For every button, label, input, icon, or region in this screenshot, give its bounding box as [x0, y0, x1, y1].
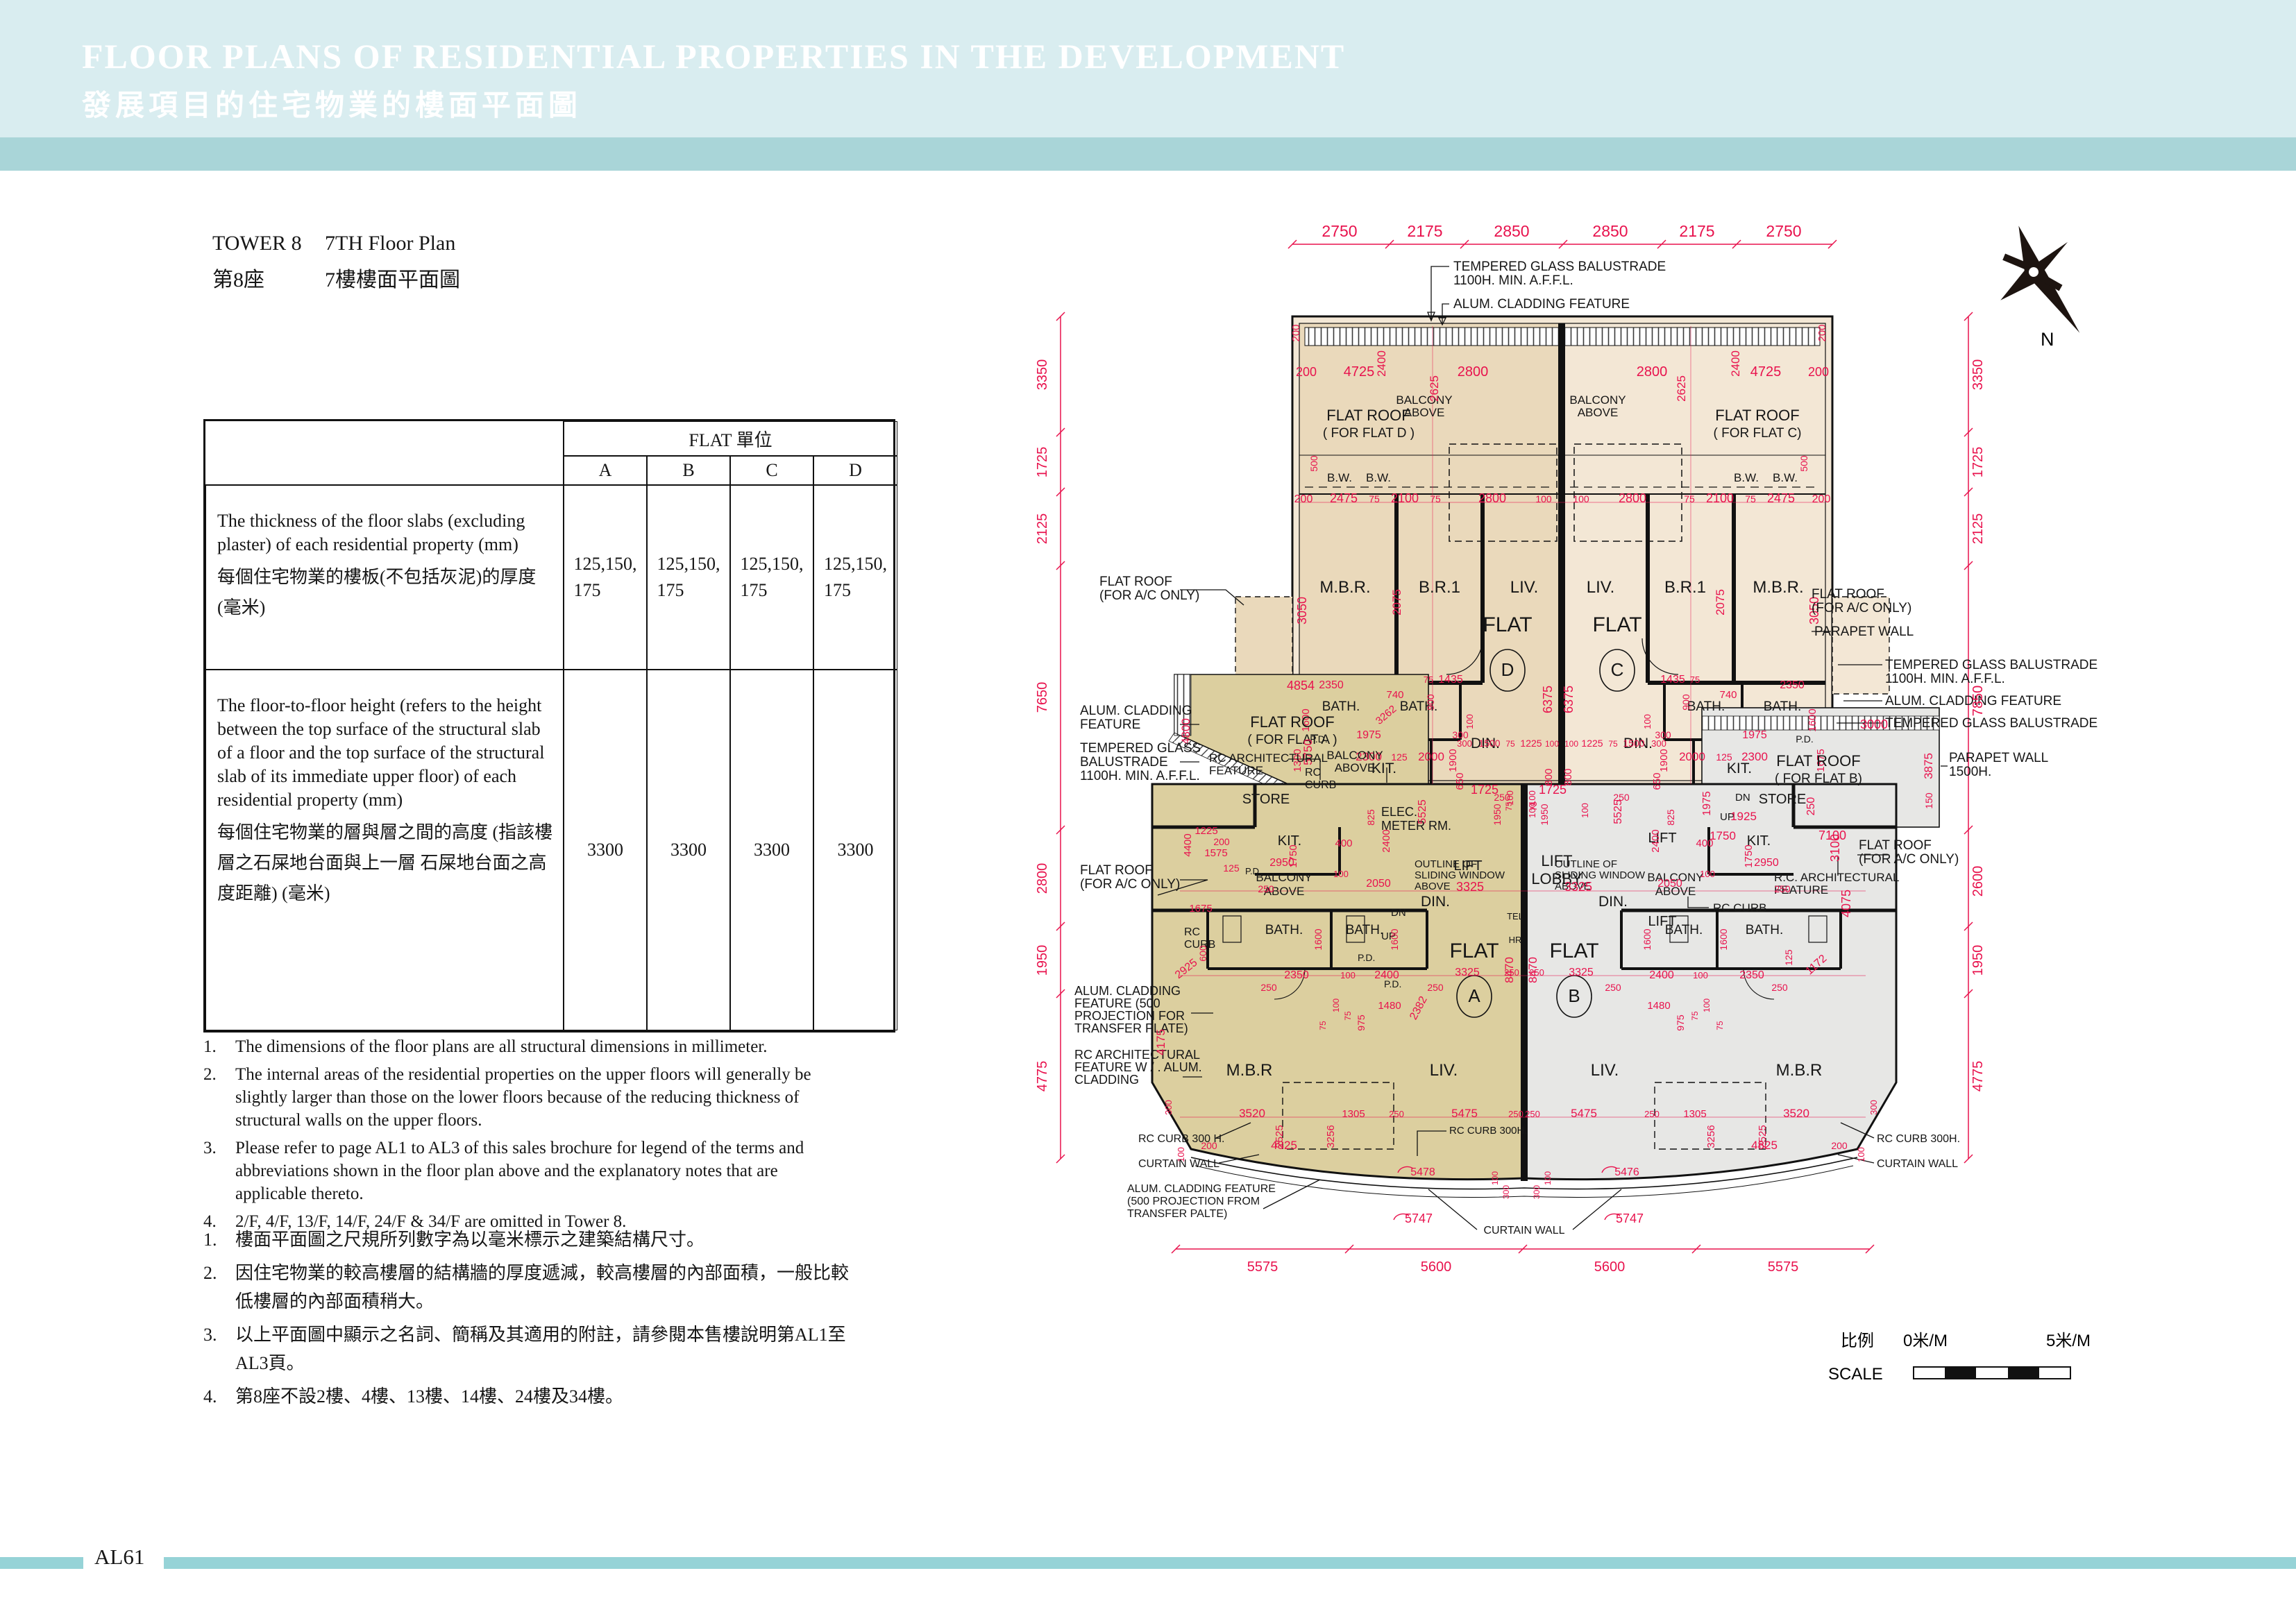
plan-label: 3350 [1970, 359, 1986, 391]
plan-label: 75 [1504, 801, 1514, 811]
plan-label: FLAT ROOF [1250, 713, 1334, 731]
plan-label: 5475 [1571, 1107, 1597, 1120]
plan-label: 250 [1771, 982, 1788, 993]
plan-label: 3256 [1705, 1125, 1717, 1148]
plan-label: 75 [1684, 493, 1695, 504]
plan-label: 7650 [1035, 682, 1050, 713]
plan-label: RC ARCHITECTURAL [1074, 1048, 1200, 1062]
plan-label: HR [1509, 935, 1522, 945]
plan-label: P.D [1245, 866, 1259, 876]
plan-label: 825 [1365, 809, 1376, 826]
plan-label: 900 [1425, 694, 1436, 711]
plan-label: 4175 [1154, 1029, 1167, 1055]
plan-label: OUTLINE OF [1555, 858, 1617, 870]
plan-label: 4775 [1035, 1061, 1050, 1092]
plan-label: 100 [1543, 1171, 1553, 1185]
plan-label: 2600 [1970, 866, 1986, 897]
plan-label: RC CURB 300H. [1449, 1125, 1528, 1137]
plan-label: 2350 [1319, 679, 1344, 691]
plan-label: 6375 [1541, 686, 1555, 713]
plan-label: 1975 [1701, 791, 1713, 816]
plan-label: FEATURE W / . ALUM. [1074, 1060, 1202, 1074]
plan-label: 3050 [1295, 597, 1309, 624]
plan-label: 1950 [1970, 945, 1986, 976]
plan-label: 2400 [1729, 350, 1742, 377]
plan-label: 5475 [1451, 1107, 1478, 1120]
plan-label: 500 [1798, 455, 1809, 472]
plan-label: 3325 [1456, 880, 1484, 894]
plan-label: TEMPERED GLASS BALUSTRADE [1885, 716, 2097, 731]
plan-label: ( FOR FLAT D ) [1323, 426, 1415, 441]
plan-label: B.R.1 [1664, 578, 1706, 597]
plan-label: C [1611, 659, 1624, 680]
scale-label-en: SCALE [1828, 1365, 1883, 1384]
plan-label: 300 [1868, 1100, 1879, 1115]
plan-label: 200 [1296, 365, 1317, 379]
plan-label: BATH. [1265, 923, 1303, 937]
plan-label: 1750 [1743, 844, 1755, 867]
plan-label: 100 [1642, 714, 1653, 729]
plan-label: B.W. [1773, 471, 1798, 484]
plan-label: ( FOR FLAT B) [1775, 772, 1862, 786]
plan-label: BATH. [1687, 699, 1725, 714]
plan-label: 200 [1831, 1140, 1848, 1151]
plan-label: FLAT ROOF [1099, 575, 1172, 589]
plan-label: 250 [1258, 883, 1274, 894]
plan-label: 7100 [1818, 829, 1846, 842]
plan-label: 200 [1213, 836, 1230, 847]
plan-label: 1725 [1970, 447, 1986, 478]
plan-label: 600 [1197, 945, 1208, 962]
plan-label: 1500H. [1949, 765, 1991, 779]
plan-label: 1600 [1718, 928, 1729, 950]
plan-label: 5476 [1614, 1166, 1639, 1178]
plan-label: 100 [1700, 869, 1715, 879]
plan-label: 2800 [1619, 491, 1646, 505]
plan-label: 2800 [1035, 863, 1050, 894]
plan-label: P.D. [1796, 733, 1813, 745]
plan-label: 200 [1290, 324, 1302, 341]
scale-zero: 0米/M [1903, 1332, 1948, 1350]
plan-label: 825 [1665, 809, 1676, 826]
plan-label: 1600 [1641, 928, 1653, 950]
plan-label: 5525 [1417, 799, 1428, 824]
plan-label: BALCONY [1326, 749, 1383, 762]
plan-label: B.W. [1327, 471, 1352, 484]
plan-label: 1100H. MIN. A.F.F.L. [1080, 769, 1200, 783]
plan-label: 100 [1573, 493, 1589, 504]
plan-label: CLADDING [1074, 1073, 1139, 1087]
plan-label: 5600 [1594, 1259, 1626, 1275]
plan-label: 3325 [1564, 880, 1592, 894]
plan-label: 125 [1716, 751, 1732, 763]
plan-label: 2175 [1679, 222, 1714, 240]
plan-label: FLAT ROOF [1812, 587, 1884, 602]
plan-label: 740 [1386, 689, 1403, 701]
plan-label: CURTAIN WALL [1138, 1158, 1219, 1170]
plan-label: 250 [1504, 967, 1519, 978]
plan-label: 1900 [1658, 749, 1670, 772]
plan-label: 1600 [1312, 928, 1324, 950]
plan-label: LIV. [1510, 578, 1539, 597]
plan-label: 1950 [1035, 945, 1050, 976]
plan-label: 1725 [1471, 783, 1499, 797]
plan-label: 250 [1508, 1109, 1523, 1119]
plan-label: 300 [1163, 1100, 1174, 1115]
plan-label: D [1501, 659, 1514, 680]
plan-label: FLAT [1483, 613, 1532, 636]
plan-label: M.B.R. [1753, 578, 1803, 597]
plan-label: 2850 [1592, 222, 1628, 240]
plan-label: RC CURB 300H. [1877, 1133, 1960, 1145]
plan-label: FLAT ROOF [1326, 407, 1410, 424]
plan-label: 300 [1532, 1185, 1542, 1199]
plan-label: 3520 [1783, 1107, 1809, 1120]
plan-label: 75 [1690, 1011, 1700, 1021]
plan-label: M.B.R. [1319, 578, 1370, 597]
plan-label: 2075 [1714, 589, 1727, 615]
brochure-page: { "header": { "title_en": "FLOOR PLANS O… [0, 0, 2296, 1623]
plan-label: DIN. [1598, 894, 1628, 910]
plan-label: 2125 [1035, 513, 1050, 545]
plan-label: 2475 [1330, 491, 1358, 505]
plan-label: 2175 [1407, 222, 1442, 240]
plan-label: 250 [1805, 797, 1817, 816]
plan-label: 1975 [1742, 729, 1767, 741]
plan-label: 1925 [1730, 810, 1757, 823]
plan-label: 3875 [1922, 753, 1935, 779]
plan-label: FEATURE [1209, 764, 1263, 777]
plan-label: BATH. [1746, 923, 1784, 937]
plan-label: 2125 [1970, 513, 1986, 545]
plan-label: RC [1184, 926, 1200, 938]
scale-five: 5米/M [2046, 1332, 2091, 1350]
plan-label: DN [1735, 792, 1750, 804]
plan-label: 2400 [1375, 350, 1388, 377]
plan-label: 2850 [1494, 222, 1529, 240]
plan-label: M.B.R [1776, 1061, 1823, 1080]
plan-label: BALCONY [1396, 393, 1452, 407]
plan-label: 3325 [1455, 967, 1480, 978]
plan-label: 100 [1856, 1147, 1866, 1162]
plan-label: 250 [1774, 883, 1791, 894]
north-arrow [1980, 213, 2095, 353]
plan-label: 5575 [1768, 1259, 1799, 1275]
plan-label: 1975 [1356, 729, 1381, 741]
plan-label: FLAT [1592, 613, 1641, 636]
plan-label: 4775 [1970, 1061, 1986, 1092]
plan-label: 2100 [1391, 491, 1419, 505]
plan-label: ALUM. CLADDING [1074, 984, 1181, 998]
plan-label: 2800 [1637, 364, 1668, 380]
plan-label: STORE [1242, 792, 1290, 807]
plan-label: (FOR A/C ONLY) [1859, 852, 1959, 867]
plan-label: TEMPERED GLASS BALUSTRADE [1453, 260, 1666, 274]
plan-label: 6375 [1562, 686, 1576, 713]
plan-label: 5478 [1410, 1166, 1435, 1178]
plan-label: 5525 [1612, 799, 1624, 824]
plan-label: 1500 [1478, 738, 1500, 749]
plan-label: 125 [1391, 751, 1408, 763]
plan-label: TEL [1507, 911, 1523, 921]
plan-label: PARAPET WALL [1814, 624, 1914, 639]
plan-label: RC CURB [1713, 901, 1766, 915]
plan-label: 75 [1745, 493, 1756, 504]
plan-label: BALCONY [1569, 393, 1626, 407]
plan-label: PROJECTION FOR [1074, 1009, 1185, 1023]
plan-label: 3325 [1569, 967, 1594, 978]
plan-label: 75 [1690, 674, 1700, 685]
plan-label: 975 [1356, 1014, 1367, 1031]
plan-label: 1725 [1539, 783, 1567, 797]
plan-label: LIV. [1430, 1061, 1458, 1080]
plan-label: 1480 [1647, 1000, 1670, 1012]
plan-label: 100 [1331, 999, 1341, 1012]
plan-label: 4075 [1839, 890, 1853, 917]
plan-label: 4825 [1751, 1139, 1778, 1152]
plan-label: FLAT ROOF [1859, 838, 1932, 853]
plan-label: 2100 [1706, 491, 1734, 505]
plan-label: TEMPERED GLASS [1080, 741, 1201, 756]
plan-label: BATH. [1665, 923, 1703, 937]
plan-label: 100 [1464, 714, 1475, 729]
plan-label: 2350 [1284, 969, 1309, 981]
plan-label: 1225 [1520, 738, 1542, 749]
plan-label: 75 [1424, 674, 1433, 685]
plan-label: BATH. [1346, 923, 1384, 937]
plan-label: 4854 [1287, 679, 1315, 692]
plan-label: 4825 [1271, 1139, 1297, 1152]
plan-label: 2475 [1767, 491, 1795, 505]
plan-label: 1600 [1807, 708, 1818, 731]
plan-label: 2750 [1766, 222, 1801, 240]
plan-label: 75 [1343, 1011, 1353, 1021]
plan-label: 1225 [1581, 738, 1603, 749]
plan-label: ABOVE [1335, 761, 1376, 774]
floor-plan: 275021752850285021752750TEMPERED GLASS B… [0, 0, 2296, 1623]
plan-label: 250 [1644, 1109, 1660, 1119]
plan-label: 2950 [1754, 857, 1779, 869]
north-label: N [2041, 329, 2054, 350]
plan-label: FEATURE (500 [1074, 996, 1160, 1010]
plan-label: LIV. [1591, 1061, 1619, 1080]
plan-label: 2400 [1649, 969, 1674, 981]
plan-label: A [1468, 985, 1480, 1006]
plan-label: (FOR A/C ONLY) [1099, 588, 1199, 603]
plan-label: 250 [1260, 982, 1277, 993]
plan-label: 1750 [1710, 829, 1736, 842]
plan-label: 650 [1454, 772, 1466, 790]
plan-label: 250 [1529, 967, 1544, 978]
plan-label: 250 [1605, 982, 1621, 993]
plan-label: CURTAIN WALL [1877, 1158, 1958, 1170]
plan-label: 1480 [1378, 1000, 1401, 1012]
plan-label: 975 [1675, 1014, 1686, 1031]
plan-label: RC [1305, 767, 1321, 779]
plan-label: 2050 [1366, 878, 1391, 890]
plan-label: 1100H. MIN. A.F.F.L. [1453, 273, 1573, 288]
plan-label: FEATURE [1080, 717, 1140, 732]
plan-label: 650 [1651, 772, 1663, 790]
plan-label: 100 [1545, 739, 1559, 749]
plan-label: 1725 [1035, 447, 1050, 478]
plan-label: ( FOR FLAT C) [1713, 426, 1801, 441]
plan-label: 1225 [1195, 825, 1217, 837]
plan-label: 75 [1608, 739, 1618, 749]
plan-label: ABOVE [1578, 406, 1619, 419]
plan-label: 100 [1340, 970, 1356, 980]
plan-label: 100 [1693, 970, 1708, 980]
plan-label: 2400 [1381, 829, 1392, 852]
plan-label: ABOVE [1415, 881, 1451, 892]
plan-label: 1950 [1539, 804, 1550, 825]
plan-label: BATH. [1764, 699, 1802, 714]
plan-label: OUTLINE OF [1415, 858, 1477, 870]
plan-label: 2075 [1390, 589, 1403, 615]
plan-label: 1500 [1623, 738, 1644, 749]
plan-label: ALUM. CLADDING [1080, 704, 1192, 718]
plan-label: 2800 [1478, 491, 1506, 505]
plan-label: 2000 [1679, 750, 1705, 763]
plan-label: 1675 [1189, 903, 1212, 915]
plan-label: ELEC. [1381, 805, 1417, 819]
plan-label: 2625 [1675, 375, 1688, 402]
plan-label: 7850 [1970, 686, 1986, 717]
plan-label: 3256 [1325, 1125, 1337, 1148]
plan-label: TRANSFER PLATE) [1074, 1021, 1188, 1035]
plan-label: 1600 [1389, 928, 1400, 950]
plan-label: 2750 [1322, 222, 1357, 240]
plan-label: RC ARCHITECTURAL [1209, 751, 1328, 765]
plan-label: 200 [1816, 324, 1828, 341]
plan-label: ALUM. CLADDING FEATURE [1453, 297, 1630, 312]
plan-label: 1435 [1438, 674, 1463, 686]
plan-label: PARAPET WALL [1949, 751, 2048, 765]
plan-label: 200 [1294, 493, 1313, 505]
plan-label: 400 [1335, 838, 1352, 849]
plan-label: 5747 [1405, 1212, 1433, 1225]
plan-label: 100 [1564, 739, 1578, 749]
plan-label: 740 [1719, 689, 1737, 701]
plan-label: 1950 [1492, 804, 1503, 825]
plan-label: 100 [1702, 999, 1712, 1012]
plan-label: 150 [1923, 792, 1934, 809]
plan-label: FLAT [1549, 940, 1598, 962]
plan-label: 400 [1696, 838, 1713, 849]
plan-label: 2950 [1269, 857, 1294, 869]
plan-label: P.D. [1358, 952, 1375, 963]
plan-label: 100 [1333, 869, 1349, 879]
plan-label: 300 [1501, 1185, 1511, 1199]
plan-label: (500 PROJECTION FROM [1127, 1196, 1260, 1207]
plan-label: FLAT ROOF [1080, 863, 1153, 878]
plan-label: BATH. [1322, 699, 1360, 714]
plan-label: 2350 [1780, 679, 1805, 691]
plan-label: 900 [1680, 694, 1691, 711]
plan-label: 75 [1369, 493, 1380, 504]
plan-label: 100 [1535, 493, 1552, 504]
plan-label: CURB [1305, 779, 1336, 791]
plan-label: B.R.1 [1419, 578, 1460, 597]
scale-label-zh: 比例 [1841, 1332, 1874, 1350]
plan-label: 2350 [1739, 969, 1764, 981]
plan-label: M.B.R [1226, 1061, 1273, 1080]
plan-label: 200 [1812, 493, 1831, 505]
plan-label: 5600 [1421, 1259, 1452, 1275]
plan-label: (FOR A/C ONLY) [1812, 601, 1911, 615]
plan-label: 3520 [1239, 1107, 1265, 1120]
plan-label: 2000 [1418, 750, 1444, 763]
plan-label: 500 [1308, 455, 1319, 472]
plan-label: 5747 [1616, 1212, 1644, 1225]
plan-label: 75 [1529, 801, 1539, 811]
plan-label: 2800 [1458, 364, 1489, 380]
plan-label: FLAT ROOF [1776, 752, 1860, 770]
plan-label: (FOR A/C ONLY) [1080, 877, 1180, 892]
plan-label: STORE [1759, 792, 1807, 807]
plan-label: 4400 [1182, 833, 1194, 856]
plan-label: 250 [1427, 982, 1444, 993]
plan-label: ( FOR FLAT A ) [1247, 733, 1337, 747]
plan-label: 1435 [1660, 674, 1685, 686]
plan-label: 100 [1490, 1171, 1500, 1185]
plan-label: 75 [1430, 493, 1441, 504]
scale-bar [1914, 1367, 2070, 1379]
plan-label: 200 [1808, 365, 1829, 379]
plan-label: 300 [1651, 738, 1666, 749]
plan-label: 1305 [1683, 1108, 1706, 1120]
plan-label: DIN. [1421, 894, 1450, 910]
plan-label: LIV. [1587, 578, 1615, 597]
plan-label: ALUM. CLADDING FEATURE [1127, 1183, 1276, 1195]
plan-label: 300 [1457, 738, 1472, 749]
plan-label: 5575 [1247, 1259, 1278, 1275]
plan-label: FLAT [1449, 940, 1499, 962]
plan-label: TRANSFER PALTE) [1127, 1208, 1227, 1220]
plan-label: BALCONY [1256, 871, 1312, 884]
plan-label: R.C. ARCHITECTURAL [1774, 871, 1899, 884]
plan-label: 2050 [1657, 878, 1682, 890]
plan-label: FLAT ROOF [1715, 407, 1799, 424]
plan-label: ABOVE [1404, 406, 1445, 419]
plan-label: 75 [1318, 1021, 1328, 1030]
plan-label: 1900 [1447, 749, 1459, 772]
plan-label: B [1568, 985, 1580, 1006]
plan-label: 2300 [1741, 750, 1768, 763]
plan-label: RC CURB 300 H. [1138, 1133, 1224, 1145]
plan-label: 125 [1783, 949, 1794, 966]
plan-label: 2625 [1428, 375, 1441, 402]
plan-label: 2400 [1650, 829, 1662, 852]
plan-label: B.W. [1366, 471, 1391, 484]
plan-label: 3000 [1860, 717, 1888, 731]
plan-label: DN [1391, 907, 1406, 919]
plan-label: 3350 [1035, 359, 1050, 391]
plan-label: B.W. [1734, 471, 1759, 484]
plan-label: 2400 [1374, 969, 1399, 981]
plan-label: TEMPERED GLASS BALUSTRADE [1885, 658, 2097, 672]
plan-label: 1100H. MIN. A.F.F.L. [1885, 672, 2005, 686]
plan-label: 250 [1525, 1109, 1540, 1119]
plan-label: 1305 [1342, 1108, 1365, 1120]
plan-label: 100 [1580, 803, 1590, 818]
plan-label: 250 [1389, 1109, 1404, 1119]
plan-label: 4725 [1344, 364, 1375, 380]
plan-label: 75 [1715, 1021, 1725, 1030]
plan-label: BALUSTRADE [1080, 755, 1168, 770]
plan-label: 125 [1223, 863, 1240, 874]
plan-label: 4725 [1750, 364, 1782, 380]
